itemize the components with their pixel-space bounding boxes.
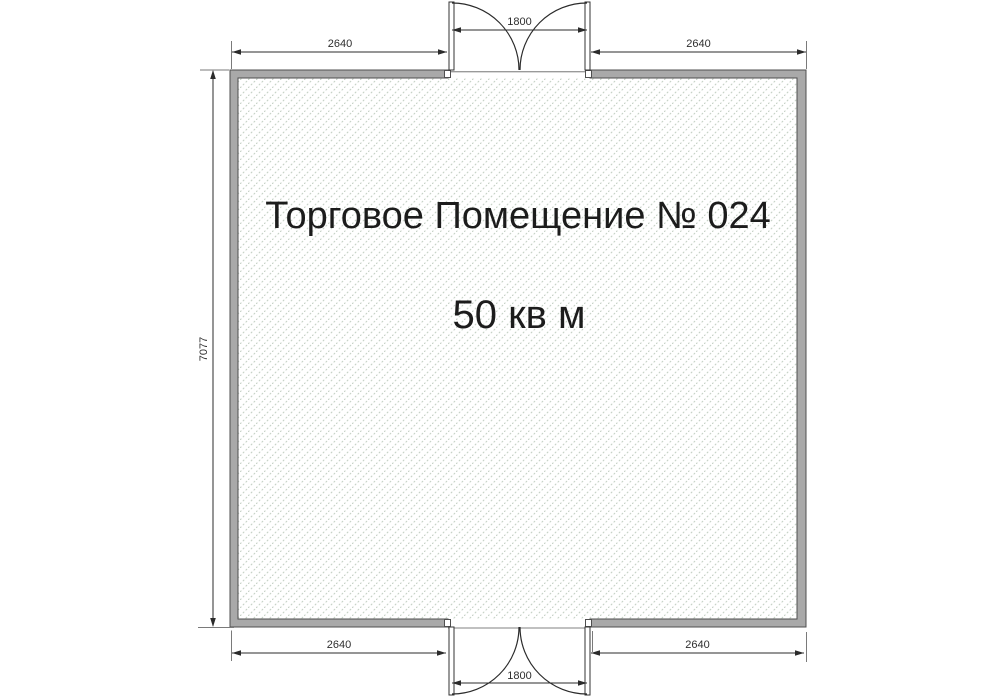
floor-plan-drawing: 1800 2640 2640 7077 2640: [0, 0, 1000, 700]
floor-plan: 1800 2640 2640 7077 2640: [0, 0, 1000, 700]
arrowhead-up: [210, 70, 216, 79]
dimension-left-height: 7077: [198, 70, 216, 627]
bottom-door-right-leaf: [585, 627, 590, 695]
dimension-top-door: 1800: [452, 16, 587, 33]
door-frame-stub: [445, 71, 451, 78]
door-frame-stub: [445, 620, 451, 627]
dimension-top-left: 2640: [232, 38, 447, 55]
room-area: 50 кв м: [453, 293, 586, 337]
dimension-label: 2640: [328, 38, 352, 50]
door-frame-stub: [586, 620, 592, 627]
arrowhead-left: [232, 650, 241, 656]
arrowhead-right: [437, 650, 446, 656]
bottom-door-right-swing-arc: [520, 627, 587, 694]
arrowhead-right: [797, 49, 806, 55]
bottom-door-left-leaf: [449, 627, 454, 695]
top-door-left-swing-arc: [452, 3, 519, 70]
dimension-label: 1800: [507, 670, 531, 682]
top-door-right-leaf: [585, 2, 590, 70]
dimension-bottom-left: 2640: [232, 639, 446, 656]
dimension-label: 2640: [685, 639, 709, 651]
door-frame-stub: [586, 71, 592, 78]
dimension-label: 2640: [327, 639, 351, 651]
dimension-label: 7077: [198, 337, 210, 361]
arrowhead-left: [232, 49, 241, 55]
dimension-bottom-door: 1800: [452, 670, 587, 686]
room-floor-hatch: [238, 78, 797, 619]
room-title: Торговое Помещение № 024: [265, 195, 771, 237]
dimension-label: 1800: [507, 16, 531, 28]
bottom-door-left-swing-arc: [452, 627, 519, 694]
arrowhead-right: [795, 650, 804, 656]
top-door-right-swing-arc: [520, 3, 587, 70]
arrowhead-right: [438, 49, 447, 55]
dimension-bottom-right: 2640: [591, 639, 804, 656]
arrowhead-left: [591, 49, 600, 55]
dimension-top-right: 2640: [591, 38, 806, 55]
dimension-label: 2640: [686, 38, 710, 50]
arrowhead-down: [210, 618, 216, 627]
top-door-left-leaf: [449, 2, 454, 70]
